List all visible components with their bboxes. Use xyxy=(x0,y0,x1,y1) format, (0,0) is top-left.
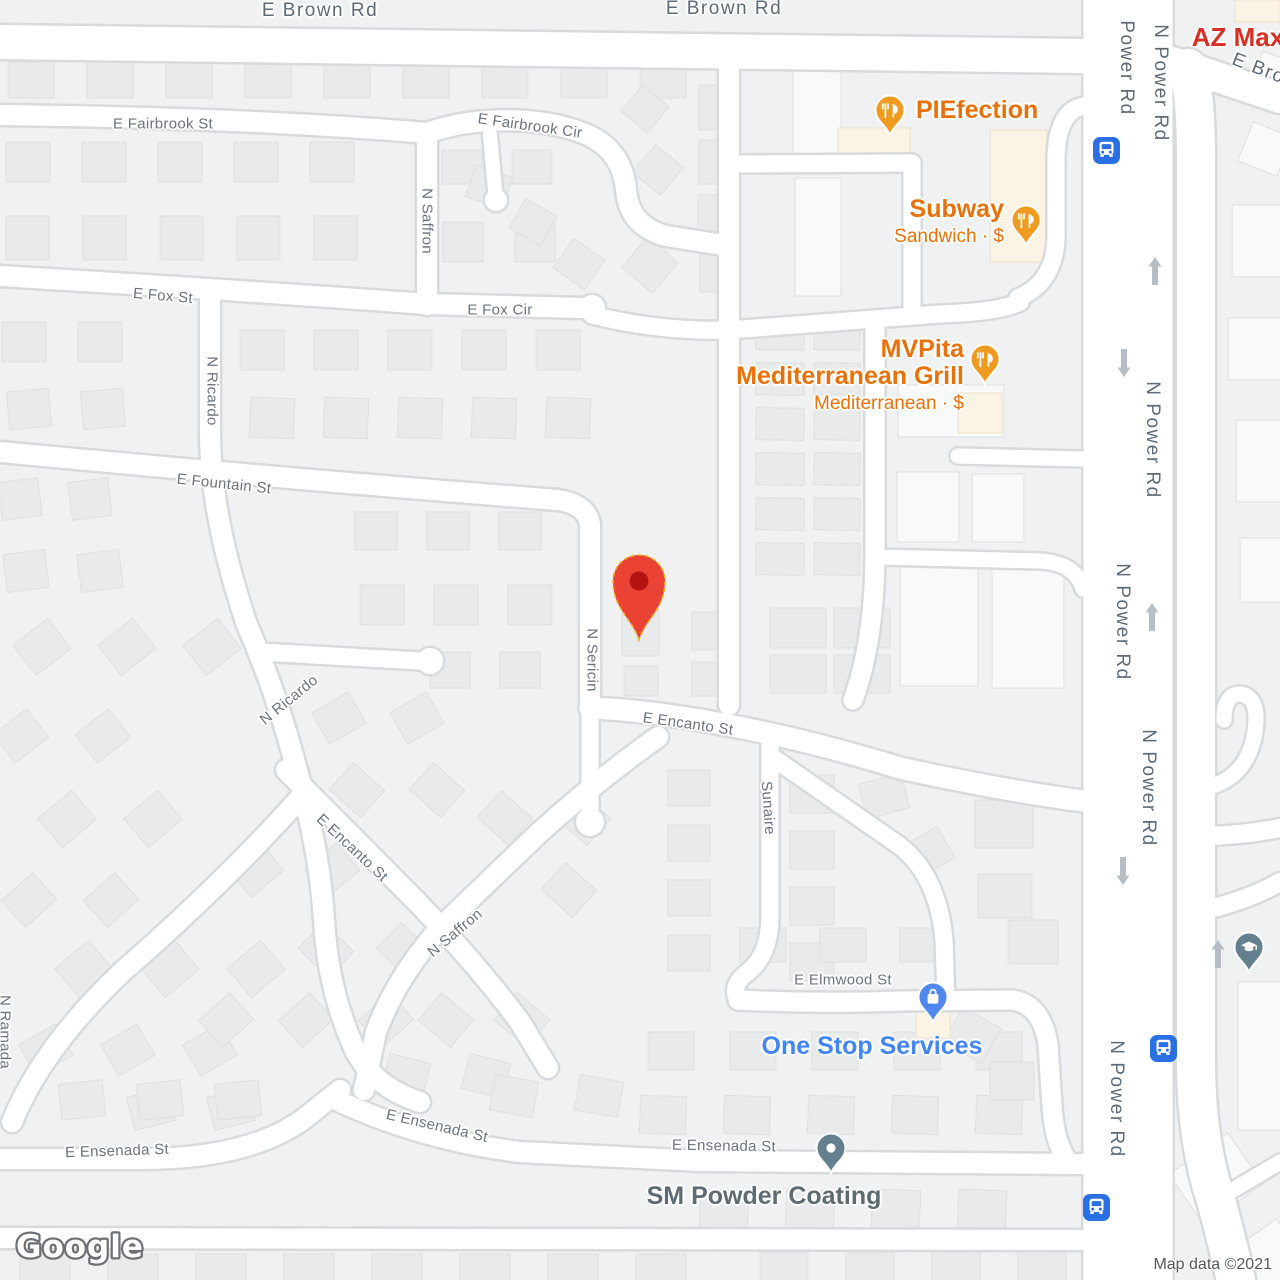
google-logo[interactable]: Google xyxy=(12,1221,162,1272)
svg-text:Google: Google xyxy=(16,1229,144,1265)
basemap-roads-buildings xyxy=(0,0,1280,1280)
map-canvas[interactable]: E Brown RdE Brown RdE Brown RdE Fairbroo… xyxy=(0,0,1280,1280)
map-attribution: Map data ©2021 xyxy=(1153,1256,1272,1274)
